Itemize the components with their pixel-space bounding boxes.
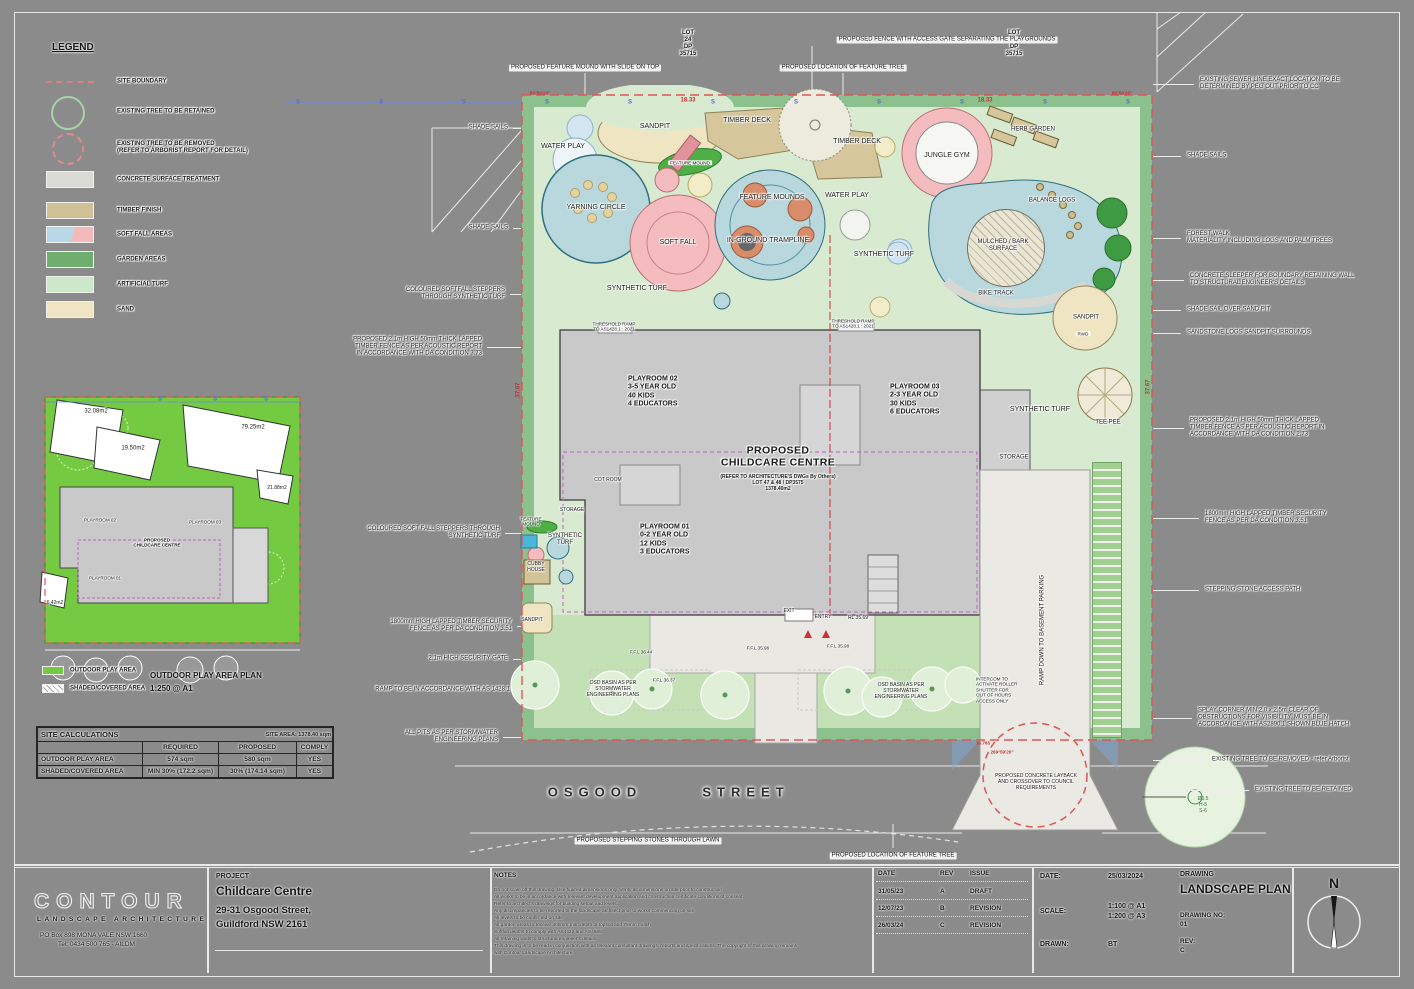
legend-swatch-site-boundary [46, 81, 94, 83]
entry-walk [650, 615, 875, 673]
revision-cell: 31/05/23 [878, 888, 903, 895]
project-address-2: Guildford NSW 2161 [216, 919, 307, 930]
table-cell: YES [296, 766, 332, 777]
inset-legend-swatch [42, 684, 64, 693]
legend-swatch [46, 301, 94, 318]
table-cell: YES [296, 754, 332, 765]
revision-cell: ISSUE [970, 870, 990, 877]
inset-legend-swatch [42, 666, 64, 675]
rev-label: REV: [1180, 938, 1195, 945]
water-play [840, 210, 870, 240]
revision-cell: 26/03/24 [878, 922, 903, 929]
project-label: PROJECT [216, 873, 249, 880]
scale-a3: 1:200 @ A3 [1108, 913, 1145, 920]
revision-cell: REVISION [970, 922, 1001, 929]
logo: CONTOUR [34, 890, 189, 914]
table-cell: 574 sqm [142, 754, 218, 765]
drawing-sheet: OUTDOOR PLAY AREA PLAN 1:250 @ A1 LEGEND… [0, 0, 1414, 989]
outdoor-play-area-plan [38, 388, 322, 700]
drawing-no-value: 01 [1180, 921, 1187, 928]
building-inset [60, 487, 233, 603]
north-letter: N [1329, 875, 1339, 891]
jungle-gym [916, 122, 978, 184]
louvre-screen [1092, 462, 1122, 738]
drawn-value: BT [1108, 941, 1117, 948]
rev-value: C [1180, 947, 1185, 954]
table-cell: PROPOSED [218, 742, 296, 753]
soft-fall [630, 195, 726, 291]
exit-door [785, 609, 813, 621]
legend-title: LEGEND [52, 42, 94, 53]
revision-cell: B [940, 905, 945, 912]
legend-swatch [46, 251, 94, 268]
drawing-label: DRAWING [1180, 871, 1214, 878]
date-value: 25/03/2024 [1108, 873, 1143, 880]
notes-label: NOTES [494, 872, 516, 879]
table-cell: OUTDOOR PLAY AREA [38, 754, 142, 765]
revision-cell: REV [940, 870, 953, 877]
cubby-house [524, 560, 550, 584]
legend-swatch-tree-retained [51, 96, 85, 130]
north-arrow: N [1298, 872, 1370, 962]
legend-swatch [46, 226, 94, 243]
drawn-label: DRAWN: [1040, 941, 1069, 948]
drawing-title: LANDSCAPE PLAN [1180, 882, 1291, 896]
logo-address: PO Box 898 MONA VALE NSW 1660 [40, 932, 147, 939]
legend-swatch [46, 202, 94, 219]
legend-swatch [46, 276, 94, 293]
trampoline-area [715, 170, 825, 280]
mulched-bark-surface [967, 209, 1045, 287]
scale-label: SCALE: [1040, 908, 1066, 915]
legend-swatch-tree-removed [52, 133, 84, 165]
sandpit-right [1053, 286, 1117, 350]
storage-annex [980, 390, 1030, 470]
stairs [868, 555, 898, 613]
notes-text: Do not scale off this drawing. Use figur… [494, 888, 864, 958]
project-name: Childcare Centre [216, 884, 312, 898]
revision-cell: A [940, 888, 945, 895]
drawing-no-label: DRAWING NO: [1180, 912, 1225, 919]
table-cell: 30% (174.14 sqm) [218, 766, 296, 777]
table-cell [38, 742, 142, 753]
inset-title: OUTDOOR PLAY AREA PLAN [150, 671, 262, 680]
main-plan [500, 85, 1270, 855]
project-address-1: 29-31 Osgood Street, [216, 905, 311, 916]
date-label: DATE: [1040, 873, 1061, 880]
threshold-ramp [838, 321, 874, 331]
revision-cell: DATE [878, 870, 895, 877]
logo-phone: Tel: 0434 500 765 - AILDM [58, 941, 135, 948]
table-cell: MIN 30% (172.2 sqm) [142, 766, 218, 777]
revision-cell: C [940, 922, 945, 929]
inset-scale: 1:250 @ A1 [150, 684, 193, 693]
revision-cell: DRAFT [970, 888, 992, 895]
table-cell: REQUIRED [142, 742, 218, 753]
table-cell: SHADED/COVERED AREA [38, 766, 142, 777]
water-tub [521, 535, 537, 548]
scale-a1: 1:100 @ A1 [1108, 903, 1145, 910]
threshold-ramp [598, 323, 632, 333]
sandpit-small [522, 603, 552, 633]
table-cell: COMPLY [296, 742, 332, 753]
table-cell: 580 sqm [218, 754, 296, 765]
site-calculations-table: SITE CALCULATIONSSITE AREA: 1378.40 sqmR… [36, 726, 334, 779]
revision-cell: REVISION [970, 905, 1001, 912]
revision-cell: 12/07/23 [878, 905, 903, 912]
logo-subtitle: LANDSCAPE ARCHITECTURE [37, 916, 207, 923]
legend-swatch [46, 171, 94, 188]
existing-tree [779, 89, 851, 161]
